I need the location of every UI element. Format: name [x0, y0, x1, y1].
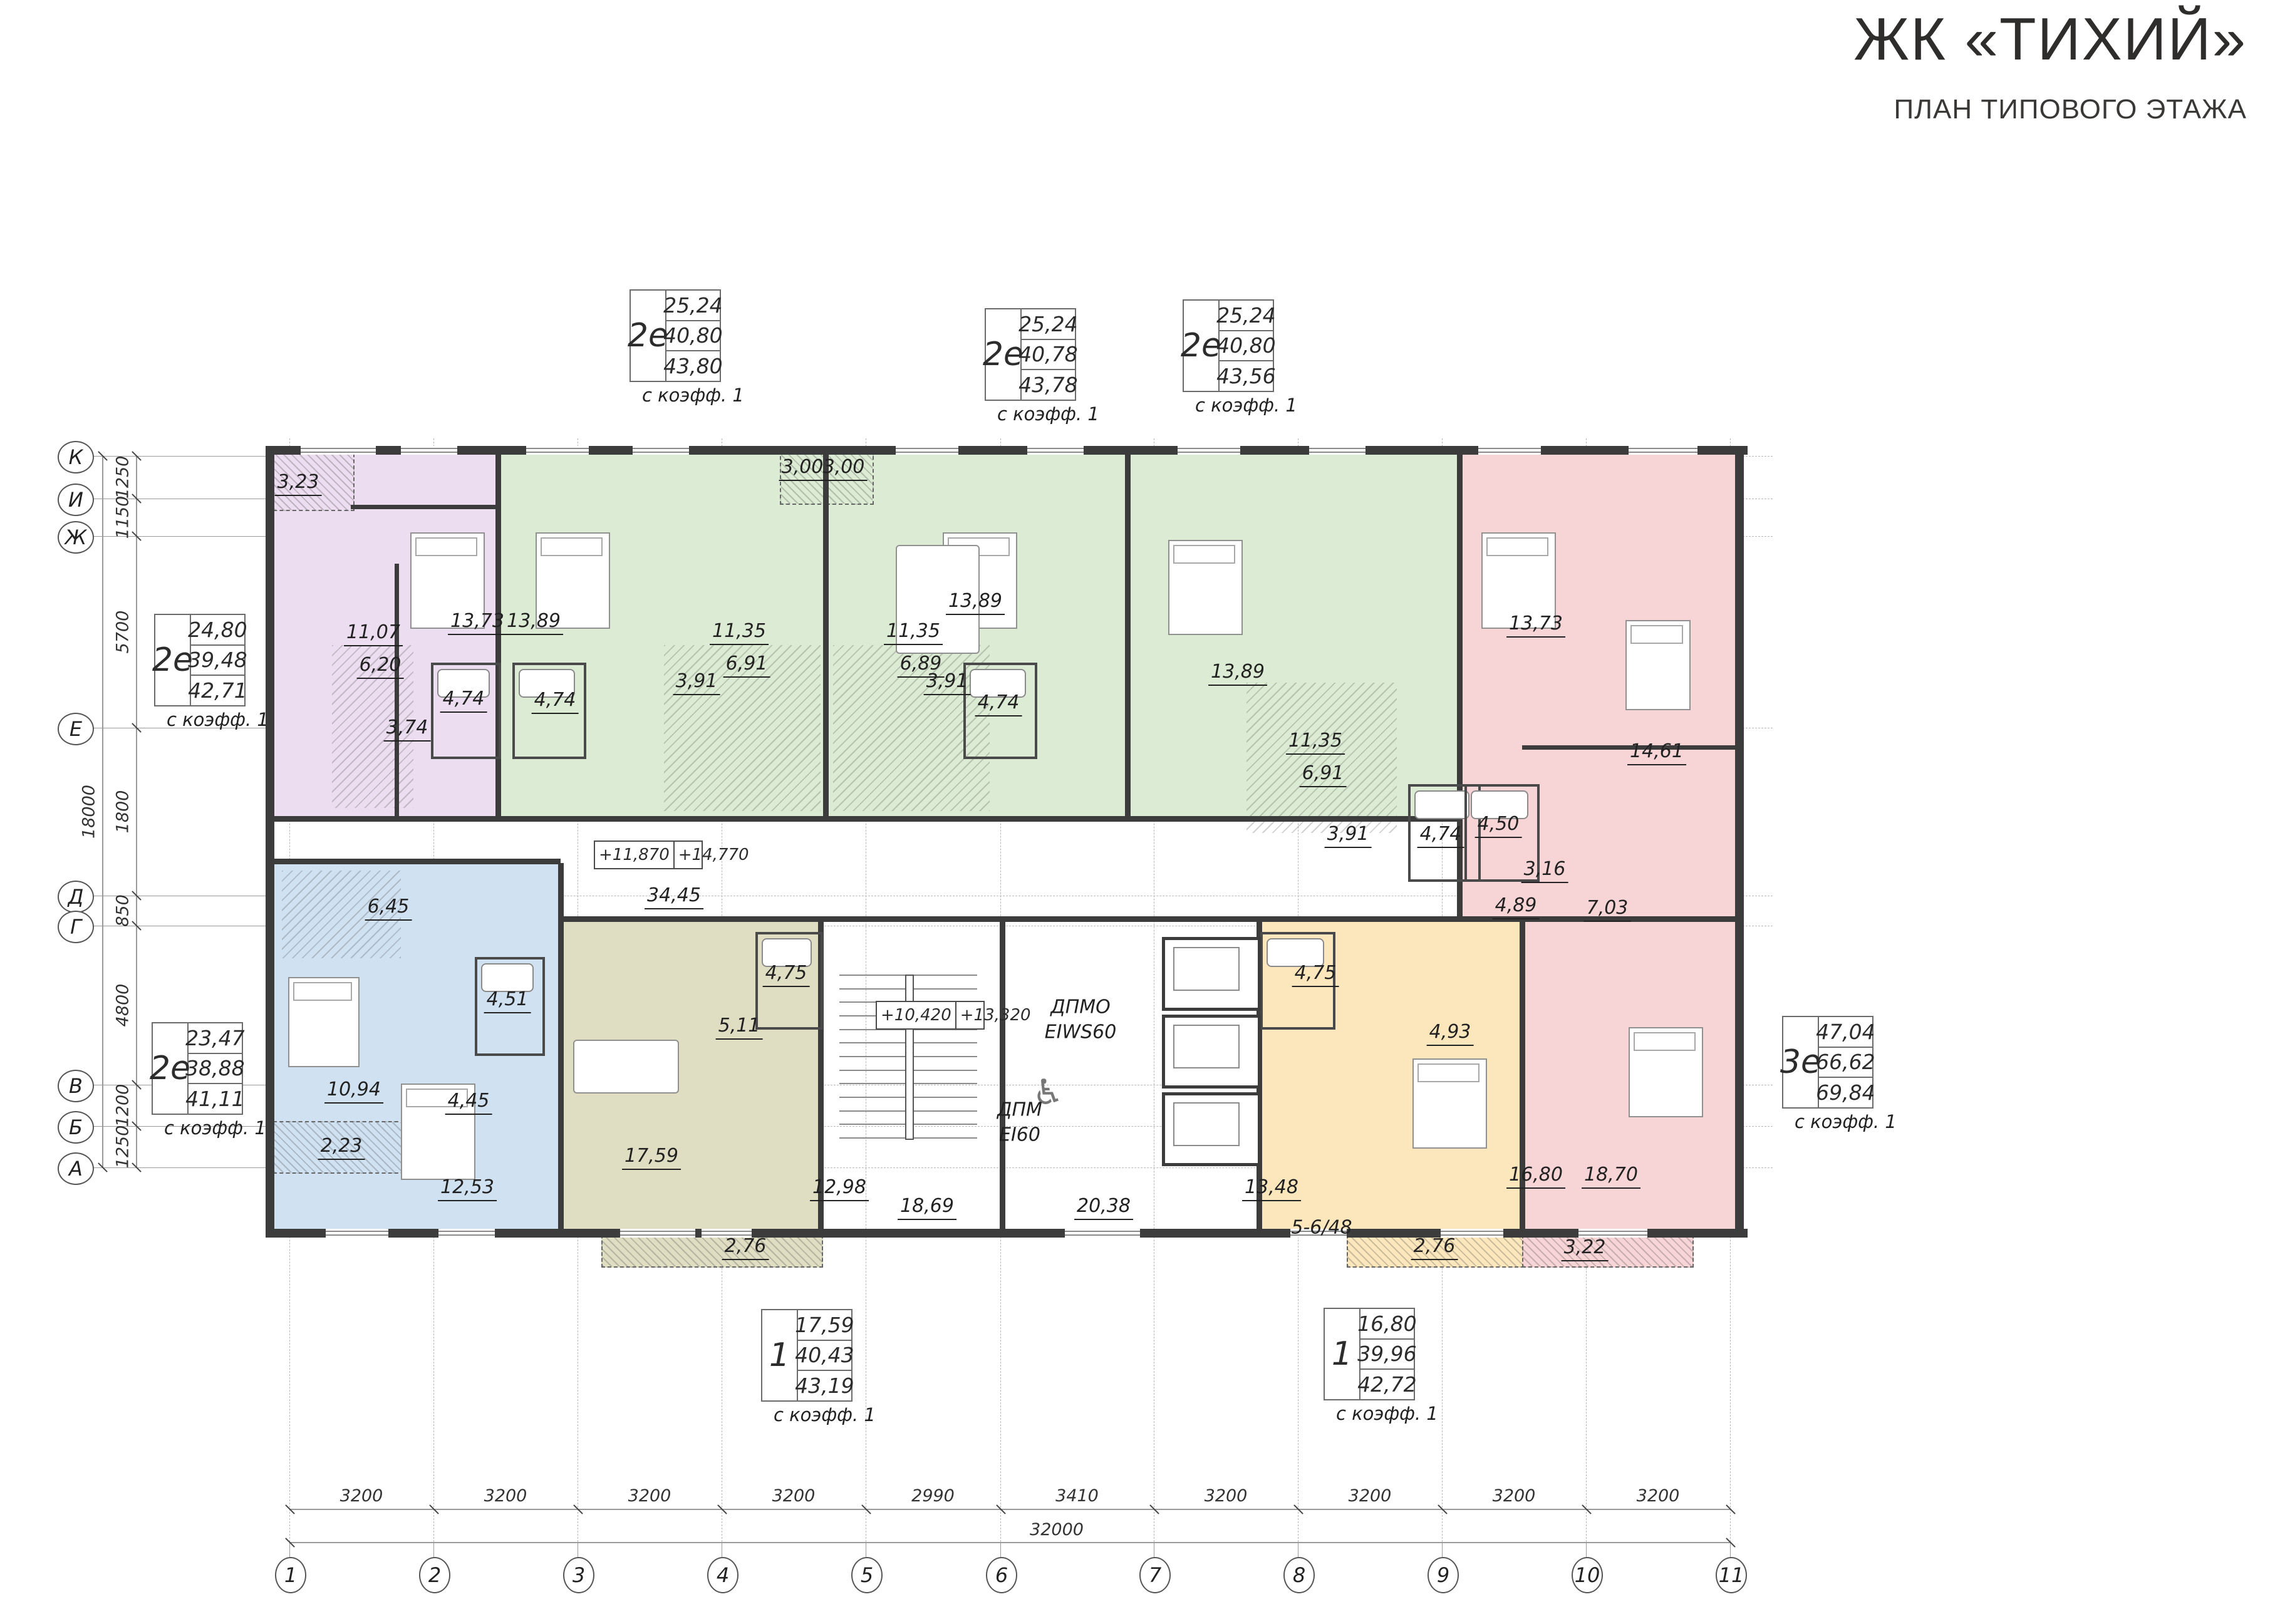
room-area-label: 13,73	[1506, 613, 1565, 638]
axis-leader	[866, 1543, 866, 1558]
room-area-label: 20,38	[1074, 1195, 1133, 1220]
coeff-note: с коэфф. 1	[167, 709, 269, 730]
room-area-label: 10,94	[324, 1078, 383, 1104]
room-area-label: 7,03	[1584, 897, 1631, 922]
bed-pillow	[1173, 545, 1235, 564]
axis-column-circle: 7	[1139, 1557, 1171, 1593]
dimension-total-label: 32000	[1030, 1520, 1084, 1539]
apartment-area-value: 38,88	[189, 1053, 242, 1084]
wall	[269, 859, 561, 864]
bathtub	[1414, 790, 1469, 819]
spec-2e-top-3: 2е25,2440,8043,56	[1183, 299, 1274, 392]
apartment-area-value: 43,56	[1220, 360, 1273, 391]
window	[1065, 1229, 1140, 1238]
room-area-label: 4,75	[1292, 962, 1339, 987]
spec-3e-right: 3е47,0466,6269,84	[1782, 1016, 1873, 1109]
apartment-type: 2е	[986, 309, 1022, 400]
apartment-area-value: 42,71	[191, 675, 244, 705]
room-area-label: 11,35	[710, 620, 769, 645]
coeff-note: с коэфф. 1	[164, 1117, 266, 1139]
room-area-label: 2,76	[1411, 1235, 1458, 1260]
coeff-note: с коэфф. 1	[774, 1404, 876, 1425]
spec-2e-top-1: 2е25,2440,8043,80	[630, 289, 721, 382]
room-area-label: 3,91	[673, 670, 720, 695]
sofa	[573, 1040, 679, 1094]
axis-row-circle: А	[58, 1152, 94, 1185]
room-area-label: 16,80	[1506, 1164, 1565, 1189]
room-area-label: 4,74	[440, 688, 487, 713]
room-area-label: 13,89	[1208, 661, 1267, 686]
dimension-label: 1250	[113, 456, 133, 499]
dimension-label: 3200	[484, 1486, 527, 1506]
axis-leader	[1730, 1543, 1731, 1558]
level-value: +14,770	[673, 842, 753, 868]
apartment-type: 2е	[153, 1023, 189, 1114]
room-area-label: 13,89	[504, 610, 563, 635]
apartment-area-value: 16,80	[1360, 1309, 1414, 1338]
bed-pillow	[1634, 1032, 1696, 1051]
elevator-car	[1173, 947, 1240, 991]
room-area-label: 6,45	[365, 896, 412, 921]
window	[438, 1229, 495, 1238]
room-area-label: 13,48	[1242, 1176, 1301, 1201]
floor-plan-canvas: ЖК «ТИХИЙ» ПЛАН ТИПОВОГО ЭТАЖА ♿3,2311,0…	[0, 0, 2275, 1624]
spec-2e-top-2: 2е25,2440,7843,78	[985, 308, 1076, 401]
axis-leader	[1154, 1543, 1154, 1558]
coeff-note: с коэфф. 1	[1336, 1403, 1438, 1424]
apartment-type: 2е	[631, 291, 666, 381]
axis-column-circle: 5	[851, 1557, 883, 1593]
axis-column-circle: 4	[707, 1557, 738, 1593]
wall	[558, 863, 564, 1229]
bed-pillow	[1417, 1063, 1480, 1082]
room-area-label: 11,35	[1286, 730, 1345, 755]
fire-door-label-dpmo-rating: EIWS60	[1045, 1021, 1117, 1043]
room-area-label: 14,61	[1627, 740, 1686, 765]
axis-leader	[1298, 1543, 1298, 1558]
level-value: +11,870	[595, 842, 673, 868]
axis-leader	[578, 1543, 578, 1558]
apartment-area-value: 40,80	[666, 320, 720, 351]
fire-door-label-dpmo: ДПМО	[1050, 996, 1111, 1018]
axis-row-circle: Ж	[58, 521, 94, 554]
apartment-area-value: 66,62	[1819, 1047, 1872, 1077]
apartment-type: 1	[1325, 1309, 1360, 1399]
bed-pillow	[1630, 625, 1683, 644]
coeff-note: с коэфф. 1	[642, 385, 744, 406]
dimension-label: 3200	[628, 1486, 671, 1506]
axis-column-circle: 11	[1716, 1557, 1747, 1593]
room-area-label: 4,93	[1427, 1021, 1474, 1046]
apartment-area-value: 40,78	[1022, 339, 1075, 370]
room-area-label: 18,69	[898, 1195, 956, 1220]
apartment-type: 3е	[1783, 1017, 1819, 1107]
dimension-label: 850	[113, 894, 133, 927]
wall	[266, 446, 274, 1238]
axis-leader	[433, 1543, 434, 1558]
apartment-area-value: 25,24	[1022, 309, 1075, 339]
window	[1027, 446, 1084, 455]
dimension-label: 1800	[113, 790, 133, 834]
room-area-label: 3,91	[924, 670, 971, 695]
room-area-label: 3,23	[275, 471, 322, 496]
window	[896, 446, 958, 455]
apartment-area-value: 41,11	[189, 1083, 242, 1114]
window	[301, 446, 376, 455]
room-area-label: 6,91	[723, 653, 770, 678]
apartment-area-value: 42,72	[1360, 1368, 1414, 1399]
room-area-label: 2,76	[722, 1235, 769, 1260]
room-area-label: 3,00	[821, 456, 868, 481]
apartment-area-value: 40,80	[1220, 330, 1273, 361]
axis-leader	[1000, 1543, 1001, 1558]
room-area-label: 18,70	[1582, 1164, 1640, 1189]
room-area-label: 3,74	[384, 716, 431, 742]
room-area-label: 17,59	[622, 1145, 681, 1170]
dimension-label: 1150	[113, 496, 133, 539]
room-area-label: 13,73	[448, 610, 507, 635]
dimension-label: 3410	[1055, 1486, 1099, 1506]
room-area-label: 4,74	[975, 691, 1022, 716]
room-area-label: 4,89	[1493, 894, 1540, 919]
elevator-car	[1173, 1102, 1240, 1146]
apartment-type: 2е	[155, 615, 191, 705]
dim-line-left	[136, 456, 137, 1167]
window	[633, 446, 689, 455]
spec-1-bottom-1: 117,5940,4343,19	[761, 1309, 852, 1402]
room-area-label: 3,00	[779, 456, 826, 481]
level-box-corridor: +11,870+14,770	[594, 840, 703, 869]
coeff-note: с коэфф. 1	[1195, 395, 1297, 416]
page-subtitle: ПЛАН ТИПОВОГО ЭТАЖА	[1894, 94, 2247, 125]
coeff-note: с коэфф. 1	[1795, 1111, 1897, 1132]
dimension-label: 4800	[113, 984, 133, 1027]
bed-pillow	[415, 537, 477, 556]
room-area-label: 5,11	[716, 1015, 763, 1040]
room-area-label: 12,98	[810, 1176, 869, 1201]
kitchen-hatch	[1246, 683, 1397, 833]
axis-row-circle: В	[58, 1070, 94, 1102]
wall	[351, 505, 501, 509]
coeff-note: с коэфф. 1	[997, 403, 1099, 425]
spec-2e-left-upper: 2е24,8039,4842,71	[154, 614, 246, 706]
axis-column-circle: 8	[1283, 1557, 1315, 1593]
dimension-label: 3200	[1493, 1486, 1536, 1506]
wall	[561, 916, 1741, 922]
axis-column-circle: 6	[986, 1557, 1017, 1593]
bed-pillow	[541, 537, 603, 556]
room-area-label: 4,50	[1475, 813, 1522, 838]
room-area-label: 6,91	[1300, 762, 1347, 787]
dimension-label: 5700	[113, 611, 133, 654]
window	[1478, 446, 1541, 455]
axis-row-circle: Б	[58, 1111, 94, 1144]
dimension-label: 1200	[113, 1084, 133, 1127]
wall	[395, 564, 399, 816]
apartment-area-value: 43,80	[666, 350, 720, 381]
apartment-area-value: 69,84	[1819, 1077, 1872, 1107]
apartment-area-value: 39,48	[191, 644, 244, 675]
axis-column-circle: 1	[275, 1557, 306, 1593]
room-area-label: 34,45	[645, 884, 703, 909]
window	[1629, 446, 1697, 455]
elevator-car	[1173, 1025, 1240, 1068]
room-area-label: 4,74	[1417, 823, 1464, 848]
dimension-label: 3200	[1205, 1486, 1248, 1506]
window	[1178, 446, 1240, 455]
spec-2e-left-lower: 2е23,4738,8841,11	[152, 1022, 243, 1115]
room-area-label: 3,16	[1521, 858, 1568, 883]
apartment-area-value: 24,80	[191, 615, 244, 644]
apartment-area-value: 17,59	[798, 1310, 851, 1340]
axis-leader	[1442, 1543, 1443, 1558]
axis-column-circle: 9	[1428, 1557, 1459, 1593]
apartment-area-value: 23,47	[189, 1023, 242, 1053]
axis-leader	[289, 1543, 290, 1558]
apartment-area-value: 40,43	[798, 1340, 851, 1370]
room-area-label: 5-6/48	[1291, 1217, 1352, 1239]
axis-row-circle: И	[58, 484, 94, 516]
dimension-label: 3200	[340, 1486, 383, 1506]
axis-leader	[722, 1543, 722, 1558]
apartment-area-value: 39,96	[1360, 1338, 1414, 1369]
room-area-label: 4,45	[445, 1090, 492, 1115]
wall	[823, 450, 829, 820]
bed-pillow	[1486, 537, 1548, 556]
room-area-label: 2,23	[318, 1135, 365, 1160]
level-box-stairs: +10,420+13,320	[876, 1001, 985, 1030]
level-value: +13,320	[955, 1002, 1035, 1028]
apartment-area-value: 43,78	[1022, 369, 1075, 400]
stair-rail	[905, 975, 914, 1140]
fire-door-label-dpm-rating: EI60	[999, 1124, 1040, 1146]
apartment-area-value: 25,24	[666, 291, 720, 320]
level-value: +10,420	[877, 1002, 955, 1028]
window	[401, 446, 457, 455]
room-area-label: 11,35	[884, 620, 943, 645]
fire-door-label-dpm: ДПМ	[997, 1099, 1042, 1121]
room-area-label: 4,74	[532, 689, 579, 714]
room-area-label: 6,20	[357, 654, 404, 679]
dimension-label: 1250	[113, 1125, 133, 1169]
apartment-area-value: 47,04	[1819, 1017, 1872, 1047]
axis-column-circle: 10	[1572, 1557, 1603, 1593]
dim-line-bottom	[289, 1509, 1730, 1510]
axis-row-circle: К	[58, 441, 94, 473]
axis-row-circle: Д	[58, 881, 94, 913]
bed-pillow	[293, 982, 352, 1001]
dimension-label: 3200	[1349, 1486, 1392, 1506]
wall	[1125, 450, 1131, 820]
dimension-total-label: 18000	[80, 785, 99, 839]
room-area-label: 11,07	[344, 621, 403, 646]
page-title: ЖК «ТИХИЙ»	[1853, 5, 2247, 74]
wall	[1735, 446, 1744, 1238]
window	[326, 1229, 388, 1238]
spec-1-bottom-2: 116,8039,9642,72	[1324, 1308, 1415, 1400]
dim-line-bottom-total	[289, 1542, 1730, 1543]
wall	[269, 816, 1459, 822]
room-area-label: 3,91	[1325, 823, 1372, 848]
dim-line-left-total	[102, 456, 103, 1167]
window	[620, 1229, 695, 1238]
dimension-label: 2990	[911, 1486, 955, 1506]
apartment-area-value: 25,24	[1220, 301, 1273, 330]
room-area-label: 4,51	[484, 988, 531, 1013]
dimension-label: 3200	[772, 1486, 816, 1506]
room-area-label: 12,53	[438, 1176, 497, 1201]
window	[1309, 446, 1366, 455]
apartment-type: 1	[762, 1310, 798, 1400]
room-area-label: 3,22	[1562, 1236, 1609, 1261]
wall	[1000, 921, 1005, 1229]
axis-column-circle: 2	[419, 1557, 450, 1593]
apartment-type: 2е	[1184, 301, 1220, 391]
axis-leader	[1586, 1543, 1587, 1558]
axis-column-circle: 3	[563, 1557, 594, 1593]
axis-row-circle: Г	[58, 911, 94, 943]
axis-row-circle: Е	[58, 713, 94, 745]
room-area-label: 4,75	[763, 962, 810, 987]
window	[526, 446, 589, 455]
dimension-label: 3200	[1637, 1486, 1680, 1506]
room-area-label: 13,89	[946, 590, 1005, 615]
apartment-area-value: 43,19	[798, 1370, 851, 1400]
